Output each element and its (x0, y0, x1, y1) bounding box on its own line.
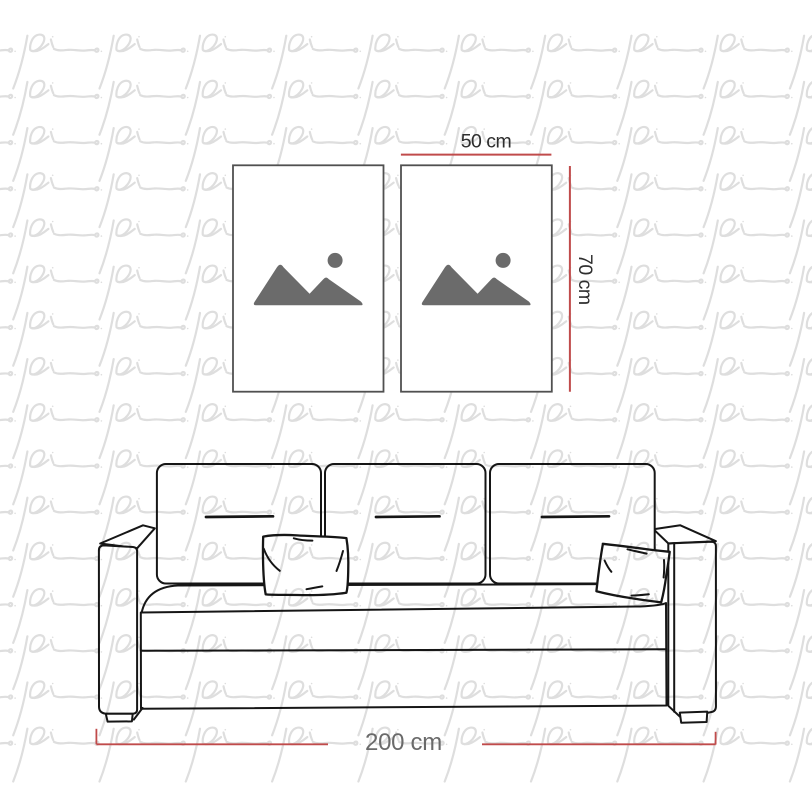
svg-text:200 cm: 200 cm (365, 729, 442, 756)
svg-text:70 cm: 70 cm (574, 254, 596, 305)
svg-text:50 cm: 50 cm (461, 130, 512, 152)
